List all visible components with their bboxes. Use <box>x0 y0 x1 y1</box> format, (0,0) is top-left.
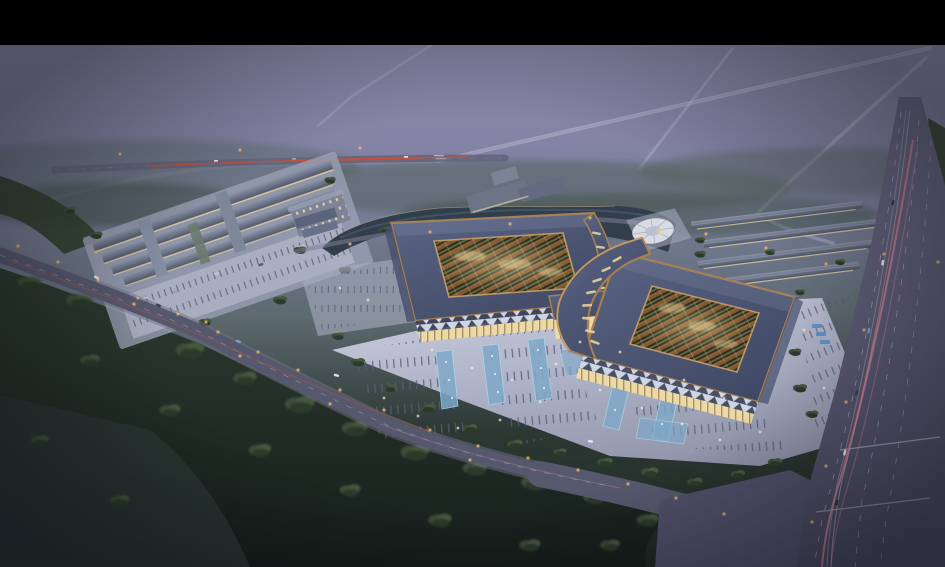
rendering-canvas <box>0 0 945 567</box>
aerial-scene <box>0 0 945 567</box>
letterbox-top <box>0 0 945 45</box>
vignette <box>0 0 945 567</box>
